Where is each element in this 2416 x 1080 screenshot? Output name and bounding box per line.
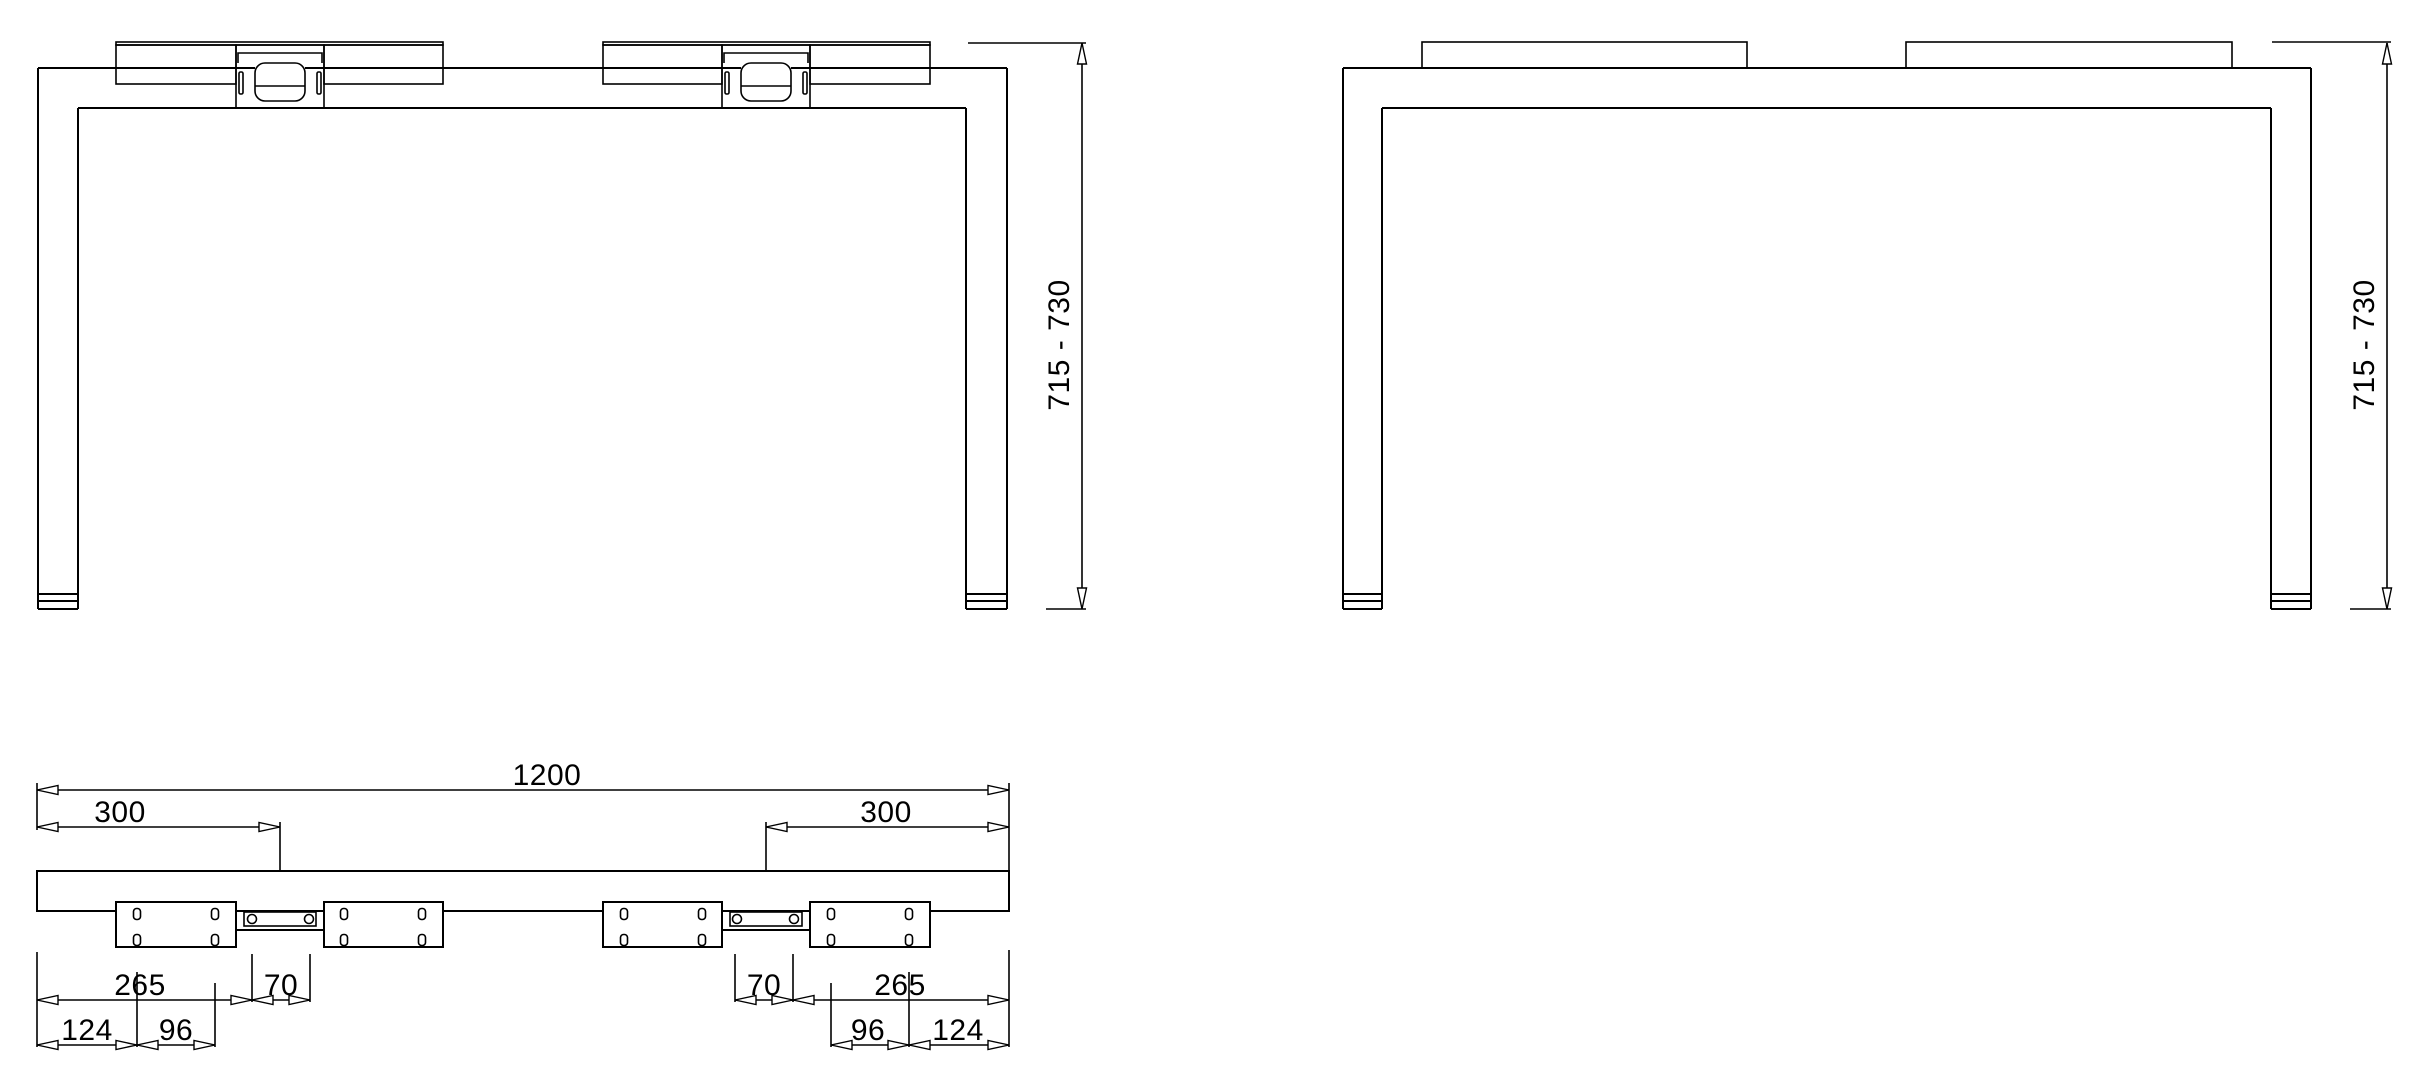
arrowhead-right <box>259 823 280 832</box>
dim-beam-length: 1200 <box>37 759 1009 795</box>
back-right-foot <box>2271 594 2311 609</box>
arrowhead-right <box>888 1041 909 1050</box>
left-265-label: 265 <box>114 969 166 1002</box>
dim-right-70-265: 70 265 <box>735 969 1009 1005</box>
arrowhead-left <box>37 786 58 795</box>
arrowhead-left <box>37 823 58 832</box>
top-view: 1200 300 300 265 70 <box>37 759 1009 1050</box>
housing-slot <box>317 72 321 94</box>
bracket-plate <box>116 45 236 84</box>
back-height-label: 715 - 730 <box>2348 279 2381 410</box>
arrowhead-down <box>2383 588 2392 609</box>
motor-housing <box>236 45 324 108</box>
back-left-foot <box>1343 594 1382 609</box>
arrowhead-left <box>137 1041 158 1050</box>
cad-drawing: 715 - 730 715 - 730 <box>0 0 2416 1080</box>
motor-channel <box>722 911 810 930</box>
housing-slot <box>803 72 807 94</box>
arrowhead-left <box>909 1041 930 1050</box>
motor-cutout <box>741 63 791 101</box>
dim-left-265-70: 265 70 <box>37 969 310 1005</box>
top-bracket-right <box>603 902 930 947</box>
left-70-label: 70 <box>264 969 298 1002</box>
arrowhead-right <box>988 823 1009 832</box>
front-bracket-left <box>116 42 443 108</box>
arrowhead-right <box>988 1041 1009 1050</box>
housing-channel <box>238 53 322 63</box>
motor-channel <box>236 911 324 930</box>
back-bracket-right <box>1906 42 2232 68</box>
back-view: 715 - 730 <box>1343 42 2392 609</box>
left-96-label: 96 <box>159 1014 193 1047</box>
housing-slot <box>239 72 243 94</box>
left-offset-label: 300 <box>94 796 146 829</box>
arrowhead-left <box>793 996 814 1005</box>
left-124-label: 124 <box>61 1014 113 1047</box>
top-bracket-left <box>116 902 443 947</box>
arrowhead-down <box>1078 588 1087 609</box>
right-124-label: 124 <box>932 1014 984 1047</box>
arrowhead-right <box>988 786 1009 795</box>
arrowhead-right <box>116 1041 137 1050</box>
dim-right-bracket-offset: 300 <box>766 796 1009 832</box>
front-height-label: 715 - 730 <box>1043 279 1076 410</box>
back-bracket-left <box>1422 42 1747 68</box>
dim-left-bracket-offset: 300 <box>37 796 280 832</box>
arrowhead-left <box>831 1041 852 1050</box>
cad-drawing-sheet: 715 - 730 715 - 730 <box>0 0 2416 1080</box>
front-height-dimension: 715 - 730 <box>968 43 1087 609</box>
housing-slot <box>725 72 729 94</box>
arrowhead-right <box>194 1041 215 1050</box>
bracket-plate <box>324 45 443 84</box>
right-265-label: 265 <box>874 969 926 1002</box>
housing-channel <box>724 53 808 63</box>
front-left-foot <box>38 594 78 609</box>
bracket-plate <box>810 45 930 84</box>
right-96-label: 96 <box>851 1014 885 1047</box>
arrowhead-left <box>37 1041 58 1050</box>
beam-length-label: 1200 <box>513 759 582 792</box>
arrowhead-left <box>37 996 58 1005</box>
dim-left-124-96: 124 96 <box>37 1014 215 1050</box>
arrowhead-up <box>1078 43 1087 64</box>
right-70-label: 70 <box>747 969 781 1002</box>
bracket-plate <box>603 45 722 84</box>
arrowhead-up <box>2383 43 2392 64</box>
back-height-dimension: 715 - 730 <box>2272 42 2392 609</box>
front-bracket-right <box>603 42 930 108</box>
motor-housing <box>722 45 810 108</box>
right-offset-label: 300 <box>860 796 912 829</box>
motor-cutout <box>255 63 305 101</box>
arrowhead-right <box>231 996 252 1005</box>
arrowhead-right <box>988 996 1009 1005</box>
front-right-foot <box>966 594 1007 609</box>
arrowhead-left <box>766 823 787 832</box>
dim-right-96-124: 96 124 <box>831 1014 1009 1050</box>
front-view: 715 - 730 <box>38 42 1087 609</box>
